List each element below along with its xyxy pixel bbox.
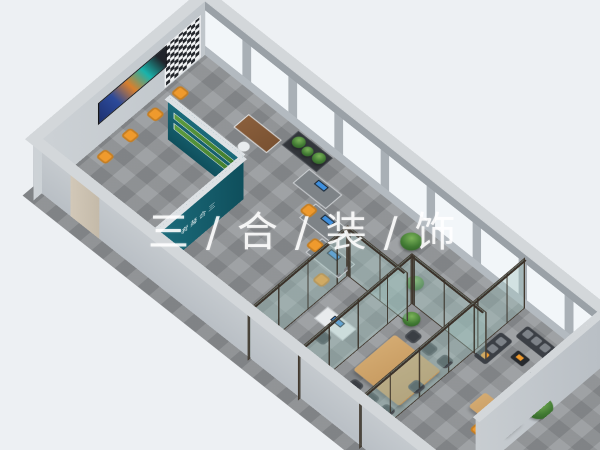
monitor (320, 214, 335, 226)
office-render-scene: 三合装饰 (0, 0, 600, 450)
cushion (486, 343, 499, 353)
cushion (495, 336, 508, 346)
monitor (314, 180, 329, 192)
